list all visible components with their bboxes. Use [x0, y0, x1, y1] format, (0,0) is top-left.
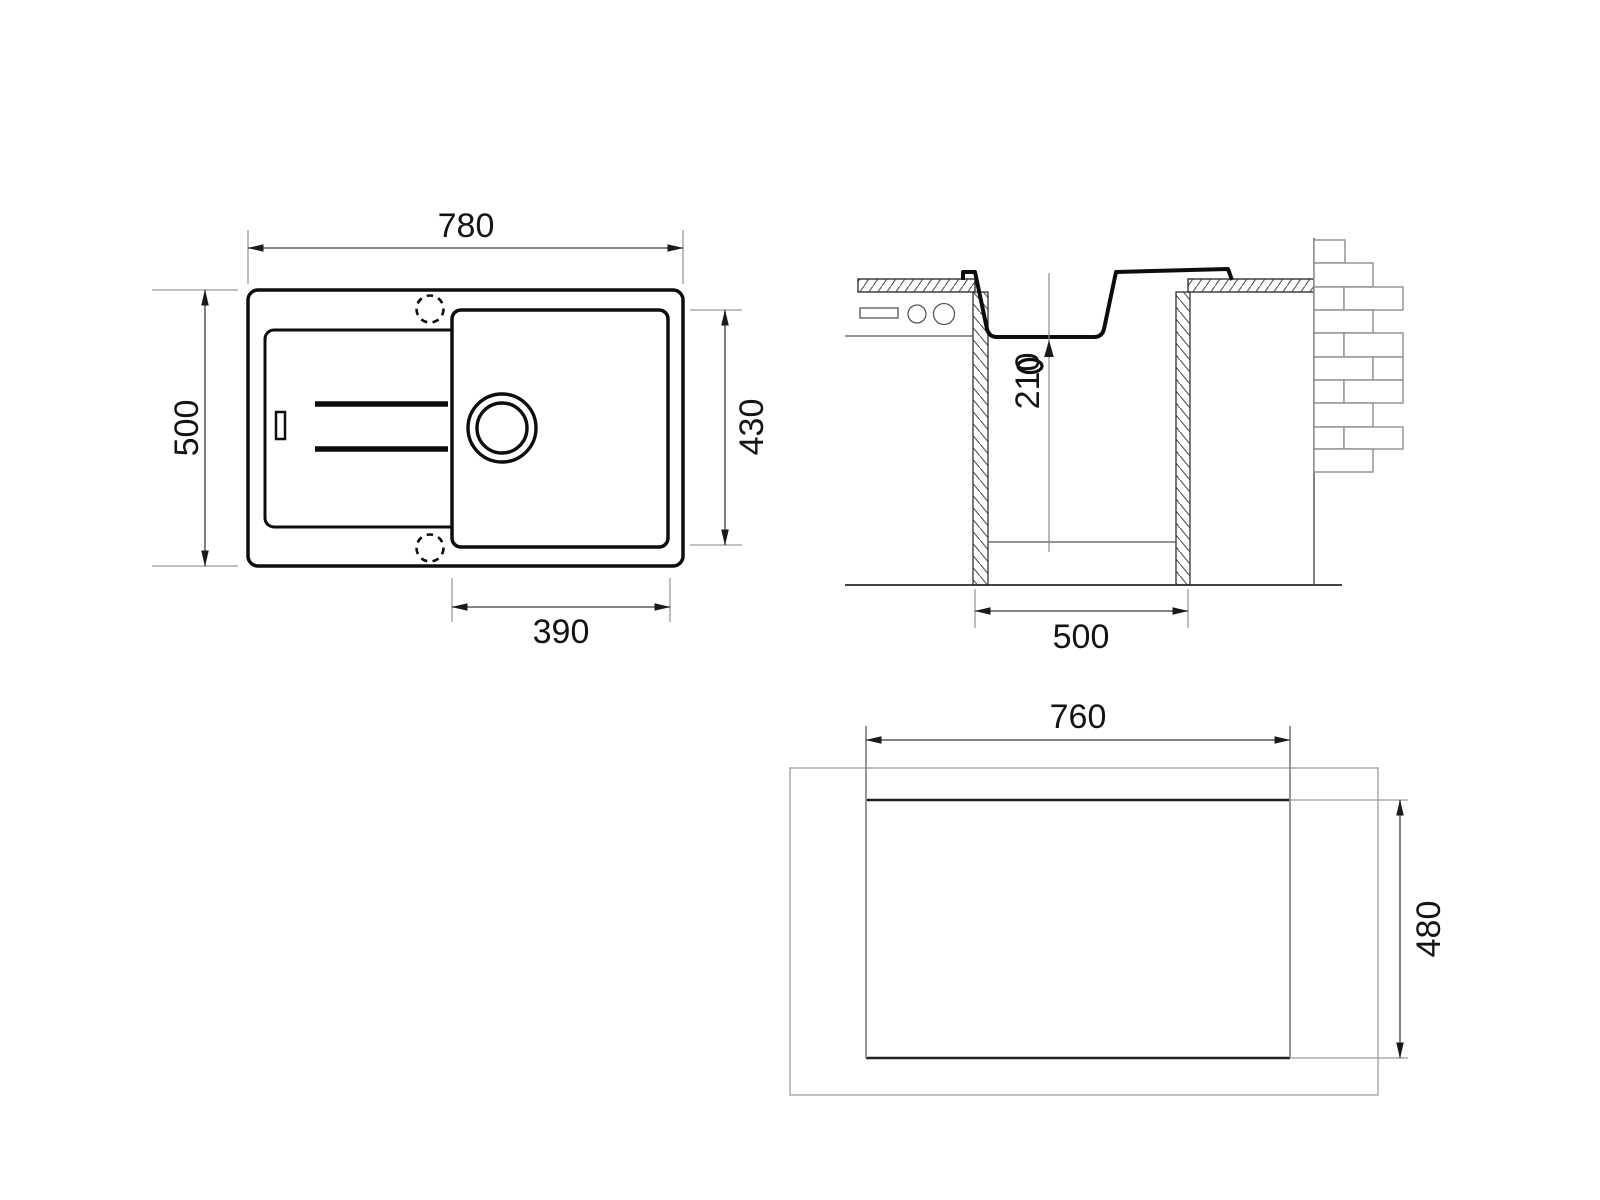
- brick: [1314, 403, 1373, 427]
- countertop-right: [1188, 279, 1314, 292]
- overflow-slot: [276, 412, 285, 439]
- dim-plan-width: 780: [248, 207, 683, 284]
- dim-plan-height: 500: [152, 290, 238, 566]
- dim-label-210: 210: [1009, 353, 1047, 410]
- brick: [1314, 449, 1373, 472]
- brick: [1314, 263, 1373, 287]
- dim-label-500-cabinet: 500: [1053, 618, 1110, 656]
- brick: [1314, 427, 1344, 449]
- dim-cutout-width: 760: [866, 698, 1290, 740]
- dim-label-760: 760: [1050, 698, 1107, 736]
- dim-cutout-height: 480: [1290, 800, 1448, 1058]
- dim-label-480: 480: [1410, 901, 1448, 958]
- dim-label-780: 780: [438, 207, 495, 245]
- brick: [1314, 357, 1373, 380]
- brick: [1314, 240, 1345, 263]
- brick: [1373, 357, 1403, 380]
- brick: [1344, 287, 1403, 310]
- dim-bowl-width: 390: [452, 578, 670, 651]
- dim-label-430: 430: [733, 399, 771, 456]
- brick: [1314, 310, 1373, 333]
- plan-view: 780 500 430 390: [152, 207, 771, 651]
- dim-bowl-depth: 210: [1009, 273, 1054, 552]
- control-symbol-circle: [908, 305, 926, 323]
- dim-cabinet-width: 500: [975, 589, 1188, 656]
- bowl-outline: [452, 310, 668, 547]
- control-symbol-circle: [934, 304, 955, 325]
- sink-technical-drawing: 780 500 430 390: [0, 0, 1600, 1200]
- brick: [1314, 380, 1344, 403]
- countertop-left: [858, 279, 975, 292]
- brick: [1344, 333, 1403, 357]
- cabinet-wall-right: [1176, 292, 1190, 585]
- brick: [1344, 427, 1403, 449]
- section-view: 210 500: [845, 238, 1403, 656]
- drawing-canvas: 780 500 430 390: [0, 0, 1600, 1200]
- brick-wall: [1314, 238, 1403, 585]
- control-symbol-rect: [860, 308, 898, 318]
- cabinet-wall-left: [973, 292, 988, 585]
- dim-label-390: 390: [533, 613, 590, 651]
- brick: [1314, 287, 1344, 310]
- brick: [1314, 333, 1344, 357]
- dim-bowl-height: 430: [690, 310, 771, 545]
- dim-label-500: 500: [168, 400, 206, 457]
- brick: [1344, 380, 1403, 403]
- cutout-view: 760 480: [790, 698, 1448, 1095]
